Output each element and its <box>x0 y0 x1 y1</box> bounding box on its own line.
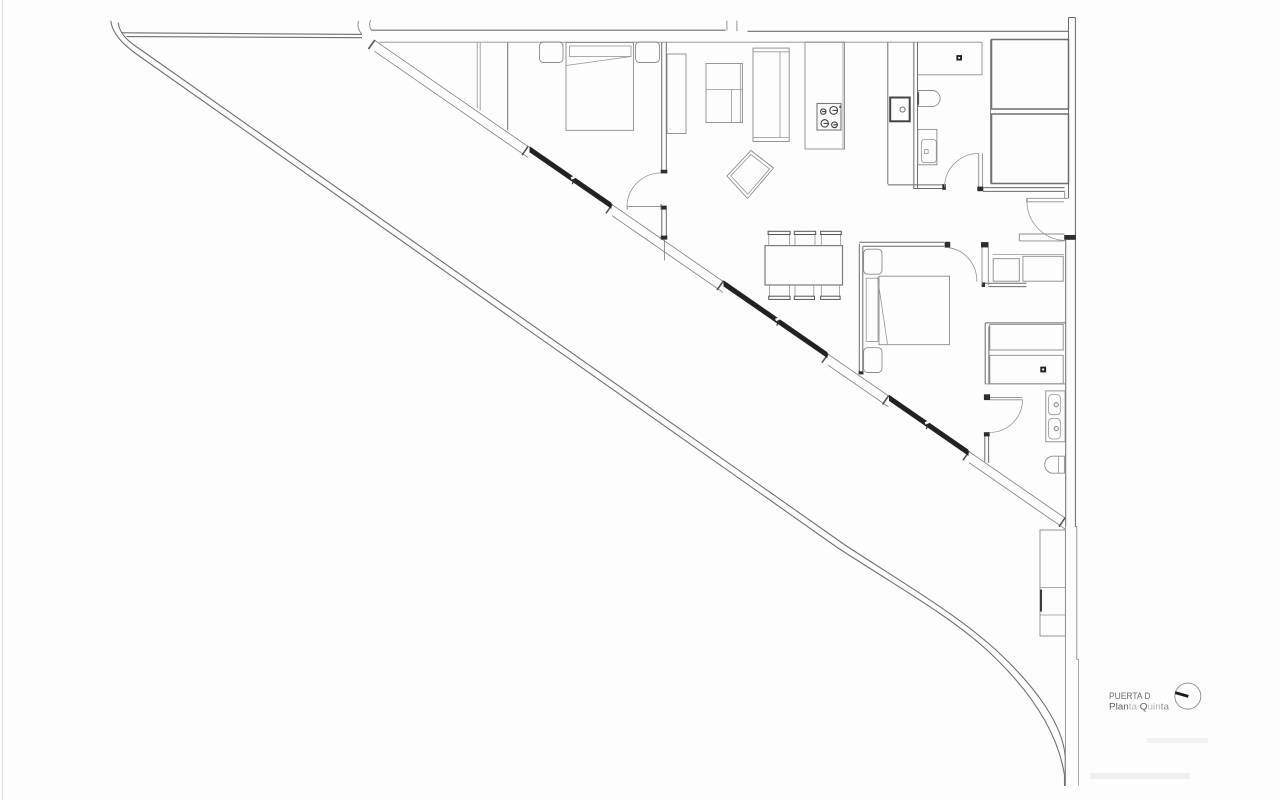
svg-text:Planta Quinta: Planta Quinta <box>1109 700 1170 711</box>
